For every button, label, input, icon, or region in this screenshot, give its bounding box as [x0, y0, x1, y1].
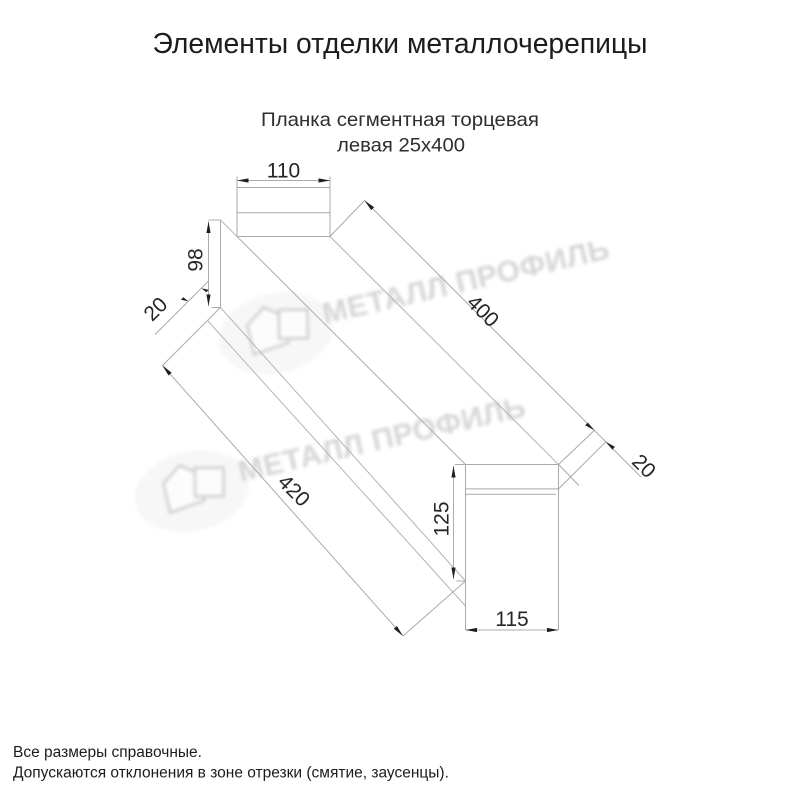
svg-text:115: 115: [495, 608, 528, 631]
svg-text:20: 20: [627, 450, 660, 483]
svg-text:125: 125: [431, 501, 454, 536]
svg-text:110: 110: [267, 160, 300, 183]
svg-text:Все размеры справочные.: Все размеры справочные.: [13, 744, 202, 761]
svg-text:Планка сегментная торцевая: Планка сегментная торцевая: [261, 109, 539, 131]
svg-text:Допускаются отклонения в зоне: Допускаются отклонения в зоне отрезки (с…: [13, 765, 449, 782]
svg-text:МЕТАЛЛ ПРОФИЛЬ: МЕТАЛЛ ПРОФИЛЬ: [319, 232, 613, 330]
svg-text:Элементы отделки металлочерепи: Элементы отделки металлочерепицы: [153, 28, 648, 60]
svg-text:20: 20: [140, 293, 173, 326]
svg-text:МЕТАЛЛ ПРОФИЛЬ: МЕТАЛЛ ПРОФИЛЬ: [235, 390, 529, 488]
svg-text:левая 25х400: левая 25х400: [337, 135, 465, 157]
svg-text:98: 98: [185, 248, 208, 271]
